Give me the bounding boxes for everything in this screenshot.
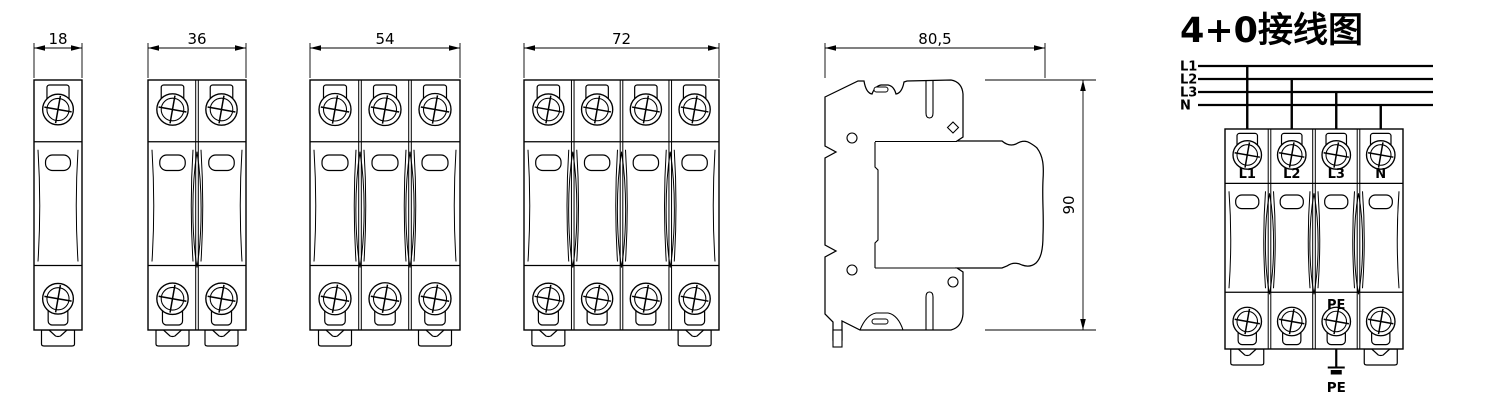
screw-terminal-icon: [678, 93, 711, 126]
mounting-hole: [847, 265, 857, 275]
label-window: [1325, 195, 1348, 209]
screw-terminal-icon: [630, 93, 663, 126]
screw-terminal-icon: [368, 93, 401, 126]
dimension-label: 72: [612, 30, 631, 48]
label-window: [1369, 195, 1392, 209]
pe-terminal-label: PE: [1327, 298, 1345, 313]
wiring-title: 4+0接线图: [1180, 11, 1363, 51]
screw-terminal-icon: [581, 282, 614, 315]
dimension-label: 80,5: [918, 30, 951, 48]
screw-terminal-icon: [1366, 140, 1396, 170]
screw-terminal-icon: [205, 282, 238, 315]
label-window: [536, 155, 561, 171]
screw-terminal-icon: [532, 93, 565, 126]
label-window: [46, 155, 71, 171]
mounting-foot: [678, 330, 711, 346]
screw-terminal-icon: [156, 93, 189, 126]
dimension-label: 90: [1060, 195, 1078, 214]
front-view-4-pole: [524, 80, 719, 346]
dimension-width-72: 72: [524, 30, 719, 78]
mounting-foot: [42, 330, 75, 346]
mounting-foot: [419, 330, 452, 346]
label-window: [422, 155, 448, 171]
dimension-width-36: 36: [148, 30, 246, 78]
screw-terminal-icon: [1232, 140, 1262, 170]
din-release-tab: [833, 330, 842, 347]
label-window: [682, 155, 707, 171]
screw-terminal-icon: [1232, 307, 1262, 337]
dimension-width-18: 18: [34, 30, 82, 78]
front-view-3-pole: [310, 80, 460, 346]
front-view-2-pole: [148, 80, 246, 346]
mounting-foot: [319, 330, 352, 346]
dimension-width-80-5: 80,5: [825, 30, 1045, 78]
screw-terminal-icon: [630, 282, 663, 315]
label-window: [1280, 195, 1303, 209]
dimension-label: 54: [375, 30, 394, 48]
bus-label: N: [1180, 99, 1191, 114]
wiring-device: [1225, 129, 1403, 365]
pole-terminal-label: L2: [1283, 167, 1300, 182]
screw-terminal-icon: [1366, 307, 1396, 337]
mounting-hole: [847, 133, 857, 143]
screw-terminal-icon: [532, 282, 565, 315]
screw-terminal-icon: [368, 282, 401, 315]
label-window: [874, 87, 888, 92]
label-window: [1236, 195, 1259, 209]
screw-terminal-icon: [318, 282, 351, 315]
pole-terminal-label: N: [1375, 167, 1386, 182]
dimension-label: 36: [187, 30, 206, 48]
label-window: [322, 155, 348, 171]
ground-label: PE: [1327, 380, 1346, 396]
mounting-foot: [205, 330, 238, 346]
pole-terminal-label: L1: [1239, 167, 1256, 182]
mounting-foot: [1231, 349, 1264, 365]
pole-terminal-label: L3: [1328, 167, 1345, 182]
screw-terminal-icon: [1321, 140, 1351, 170]
side-view: [825, 80, 1043, 347]
front-view-1-pole: [34, 80, 82, 346]
drawing-canvas: 1836547280,5904+0接线图L1L2L3NL1L2L3NPEPE: [0, 0, 1500, 400]
label-window: [584, 155, 609, 171]
screw-terminal-icon: [42, 283, 74, 315]
mounting-hole: [948, 277, 958, 287]
side-profile-outline: [825, 80, 1043, 340]
screw-terminal-icon: [156, 282, 189, 315]
mounting-foot: [1364, 349, 1397, 365]
label-window: [872, 319, 888, 324]
mounting-foot: [156, 330, 189, 346]
screw-terminal-icon: [42, 93, 74, 125]
label-window: [209, 155, 234, 171]
earth-ground-icon: [1328, 349, 1345, 375]
dimension-label: 18: [48, 30, 67, 48]
screw-terminal-icon: [678, 282, 711, 315]
screw-terminal-icon: [1277, 307, 1307, 337]
screw-terminal-icon: [205, 93, 238, 126]
dimension-width-54: 54: [310, 30, 460, 78]
screw-terminal-icon: [581, 93, 614, 126]
screw-terminal-icon: [318, 93, 351, 126]
spd-technical-drawing: 1836547280,5904+0接线图L1L2L3NL1L2L3NPEPE: [0, 0, 1500, 400]
screw-terminal-icon: [418, 282, 451, 315]
screw-terminal-icon: [418, 93, 451, 126]
label-window: [633, 155, 658, 171]
label-window: [160, 155, 185, 171]
wiring-diagram: 4+0接线图L1L2L3NL1L2L3NPEPE: [1180, 11, 1433, 396]
label-window: [372, 155, 398, 171]
mounting-foot: [532, 330, 565, 346]
screw-terminal-icon: [1277, 140, 1307, 170]
